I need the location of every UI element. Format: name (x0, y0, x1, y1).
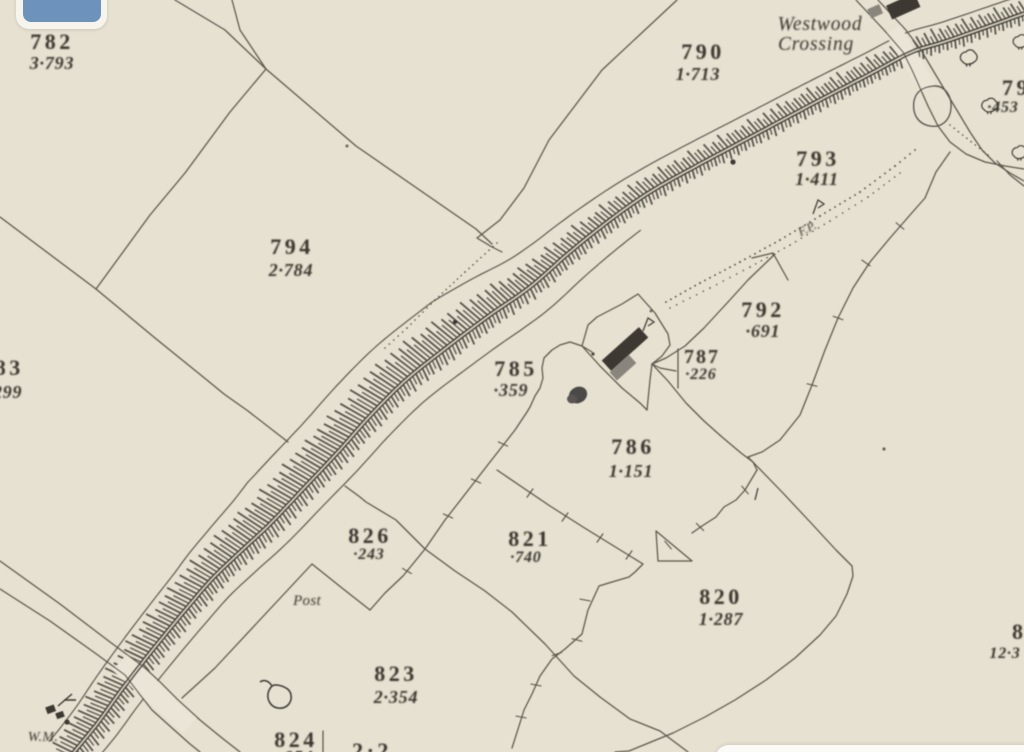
svg-text:·740: ·740 (510, 549, 541, 566)
svg-text:782: 782 (30, 29, 74, 54)
svg-text:795: 795 (1002, 75, 1024, 100)
svg-text:·453: ·453 (987, 99, 1018, 116)
svg-text:820: 820 (699, 584, 743, 609)
svg-text:787: 787 (684, 346, 720, 368)
svg-text:Westwood: Westwood (778, 14, 863, 35)
svg-text:786: 786 (611, 434, 655, 459)
svg-text:·691: ·691 (746, 321, 781, 341)
svg-text:794: 794 (270, 234, 314, 259)
svg-text:785: 785 (494, 356, 538, 381)
svg-text:793: 793 (796, 146, 840, 171)
svg-text:·243: ·243 (353, 546, 384, 563)
svg-text:W.M.: W.M. (28, 730, 58, 745)
svg-text:3·793: 3·793 (29, 53, 75, 73)
svg-text:Post: Post (292, 593, 321, 609)
svg-text:1·411: 1·411 (795, 169, 839, 189)
svg-text:2·2: 2·2 (352, 738, 392, 752)
svg-text:Crossing: Crossing (778, 34, 854, 55)
svg-text:2·784: 2·784 (268, 260, 314, 280)
svg-text:12·3: 12·3 (989, 645, 1020, 662)
svg-text:792: 792 (741, 297, 785, 322)
svg-text:821: 821 (508, 526, 552, 551)
svg-text:823: 823 (374, 661, 418, 686)
svg-text:2·354: 2·354 (373, 687, 419, 707)
svg-text:·299: ·299 (0, 382, 22, 402)
svg-text:826: 826 (348, 523, 392, 548)
svg-text:1·287: 1·287 (699, 609, 744, 629)
svg-text:783: 783 (0, 355, 24, 380)
svg-text:·226: ·226 (685, 366, 716, 383)
svg-text:·054: ·054 (279, 747, 314, 752)
svg-text:82: 82 (1012, 619, 1024, 644)
svg-text:1·713: 1·713 (676, 64, 721, 84)
svg-text:1·151: 1·151 (609, 461, 654, 481)
svg-text:·359: ·359 (494, 380, 529, 400)
svg-text:790: 790 (681, 39, 725, 64)
